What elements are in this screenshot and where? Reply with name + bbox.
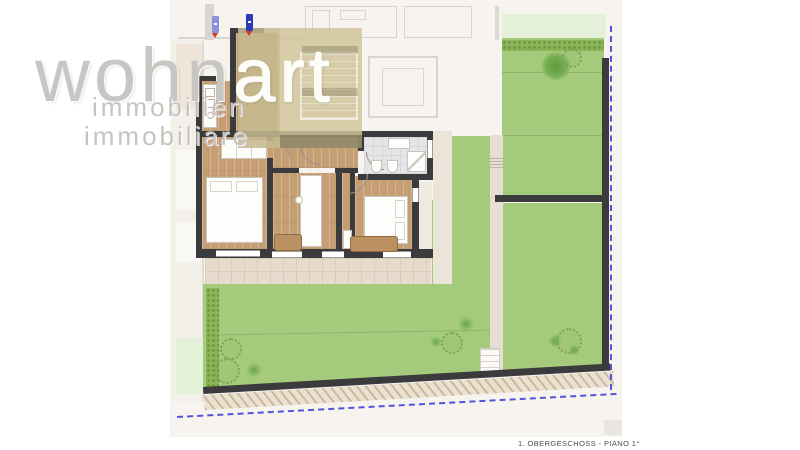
adjacent-garden-pale bbox=[176, 338, 204, 394]
side-path bbox=[433, 131, 452, 284]
window bbox=[272, 251, 302, 258]
shower bbox=[407, 151, 426, 172]
wall bbox=[336, 172, 342, 249]
adjacent-garden-pale bbox=[502, 14, 606, 38]
plan-caption: 1. OBERGESCHOSS - PIANO 1° bbox=[518, 439, 640, 448]
wall bbox=[358, 174, 433, 180]
faded-wall-line bbox=[495, 6, 499, 40]
bush-icon bbox=[220, 338, 242, 360]
pillow bbox=[395, 200, 405, 218]
logo-subline-immobiliare: immobiliare bbox=[84, 123, 250, 149]
window bbox=[427, 140, 433, 158]
faded-adjacent-room bbox=[404, 6, 472, 38]
window bbox=[322, 251, 344, 258]
sofa bbox=[274, 234, 302, 251]
bathroom-sink bbox=[388, 138, 410, 149]
window bbox=[216, 250, 260, 257]
hedge-strip bbox=[502, 40, 604, 51]
wall-under-overlay bbox=[280, 135, 362, 148]
terrace bbox=[205, 258, 431, 284]
garden-divider-path bbox=[490, 135, 503, 375]
garden-east-strip bbox=[448, 136, 490, 284]
pillow bbox=[210, 181, 232, 192]
bush-icon bbox=[458, 316, 474, 332]
window bbox=[412, 188, 419, 202]
boundary-wall-divider bbox=[495, 195, 609, 202]
pillow bbox=[236, 181, 258, 192]
bush-icon bbox=[548, 334, 562, 348]
floorplan-page: wohnart immobilien immobiliare 1. OBERGE… bbox=[0, 0, 800, 450]
bush-icon bbox=[430, 336, 442, 348]
bidet bbox=[387, 160, 398, 173]
logo-subline-immobilien: immobilien bbox=[92, 94, 246, 120]
bush-icon bbox=[562, 48, 582, 68]
bench bbox=[350, 236, 398, 252]
bush-icon bbox=[214, 358, 240, 384]
bush-icon bbox=[441, 332, 463, 354]
wall bbox=[273, 168, 299, 173]
boundary-wall-east bbox=[602, 58, 609, 370]
furniture-knob bbox=[295, 196, 303, 204]
property-line bbox=[610, 26, 612, 390]
garden-seam-line bbox=[502, 135, 604, 136]
toilet bbox=[371, 160, 382, 173]
logo-word-white: art bbox=[233, 33, 334, 118]
bush-icon bbox=[246, 362, 262, 378]
faded-footer-block bbox=[604, 420, 622, 435]
wardrobe bbox=[300, 175, 322, 247]
faded-adjacent-stairwell-inner bbox=[382, 68, 424, 106]
window bbox=[383, 251, 411, 258]
bush-icon bbox=[568, 344, 580, 356]
faded-fixture bbox=[340, 10, 366, 20]
path-steps bbox=[490, 158, 503, 168]
